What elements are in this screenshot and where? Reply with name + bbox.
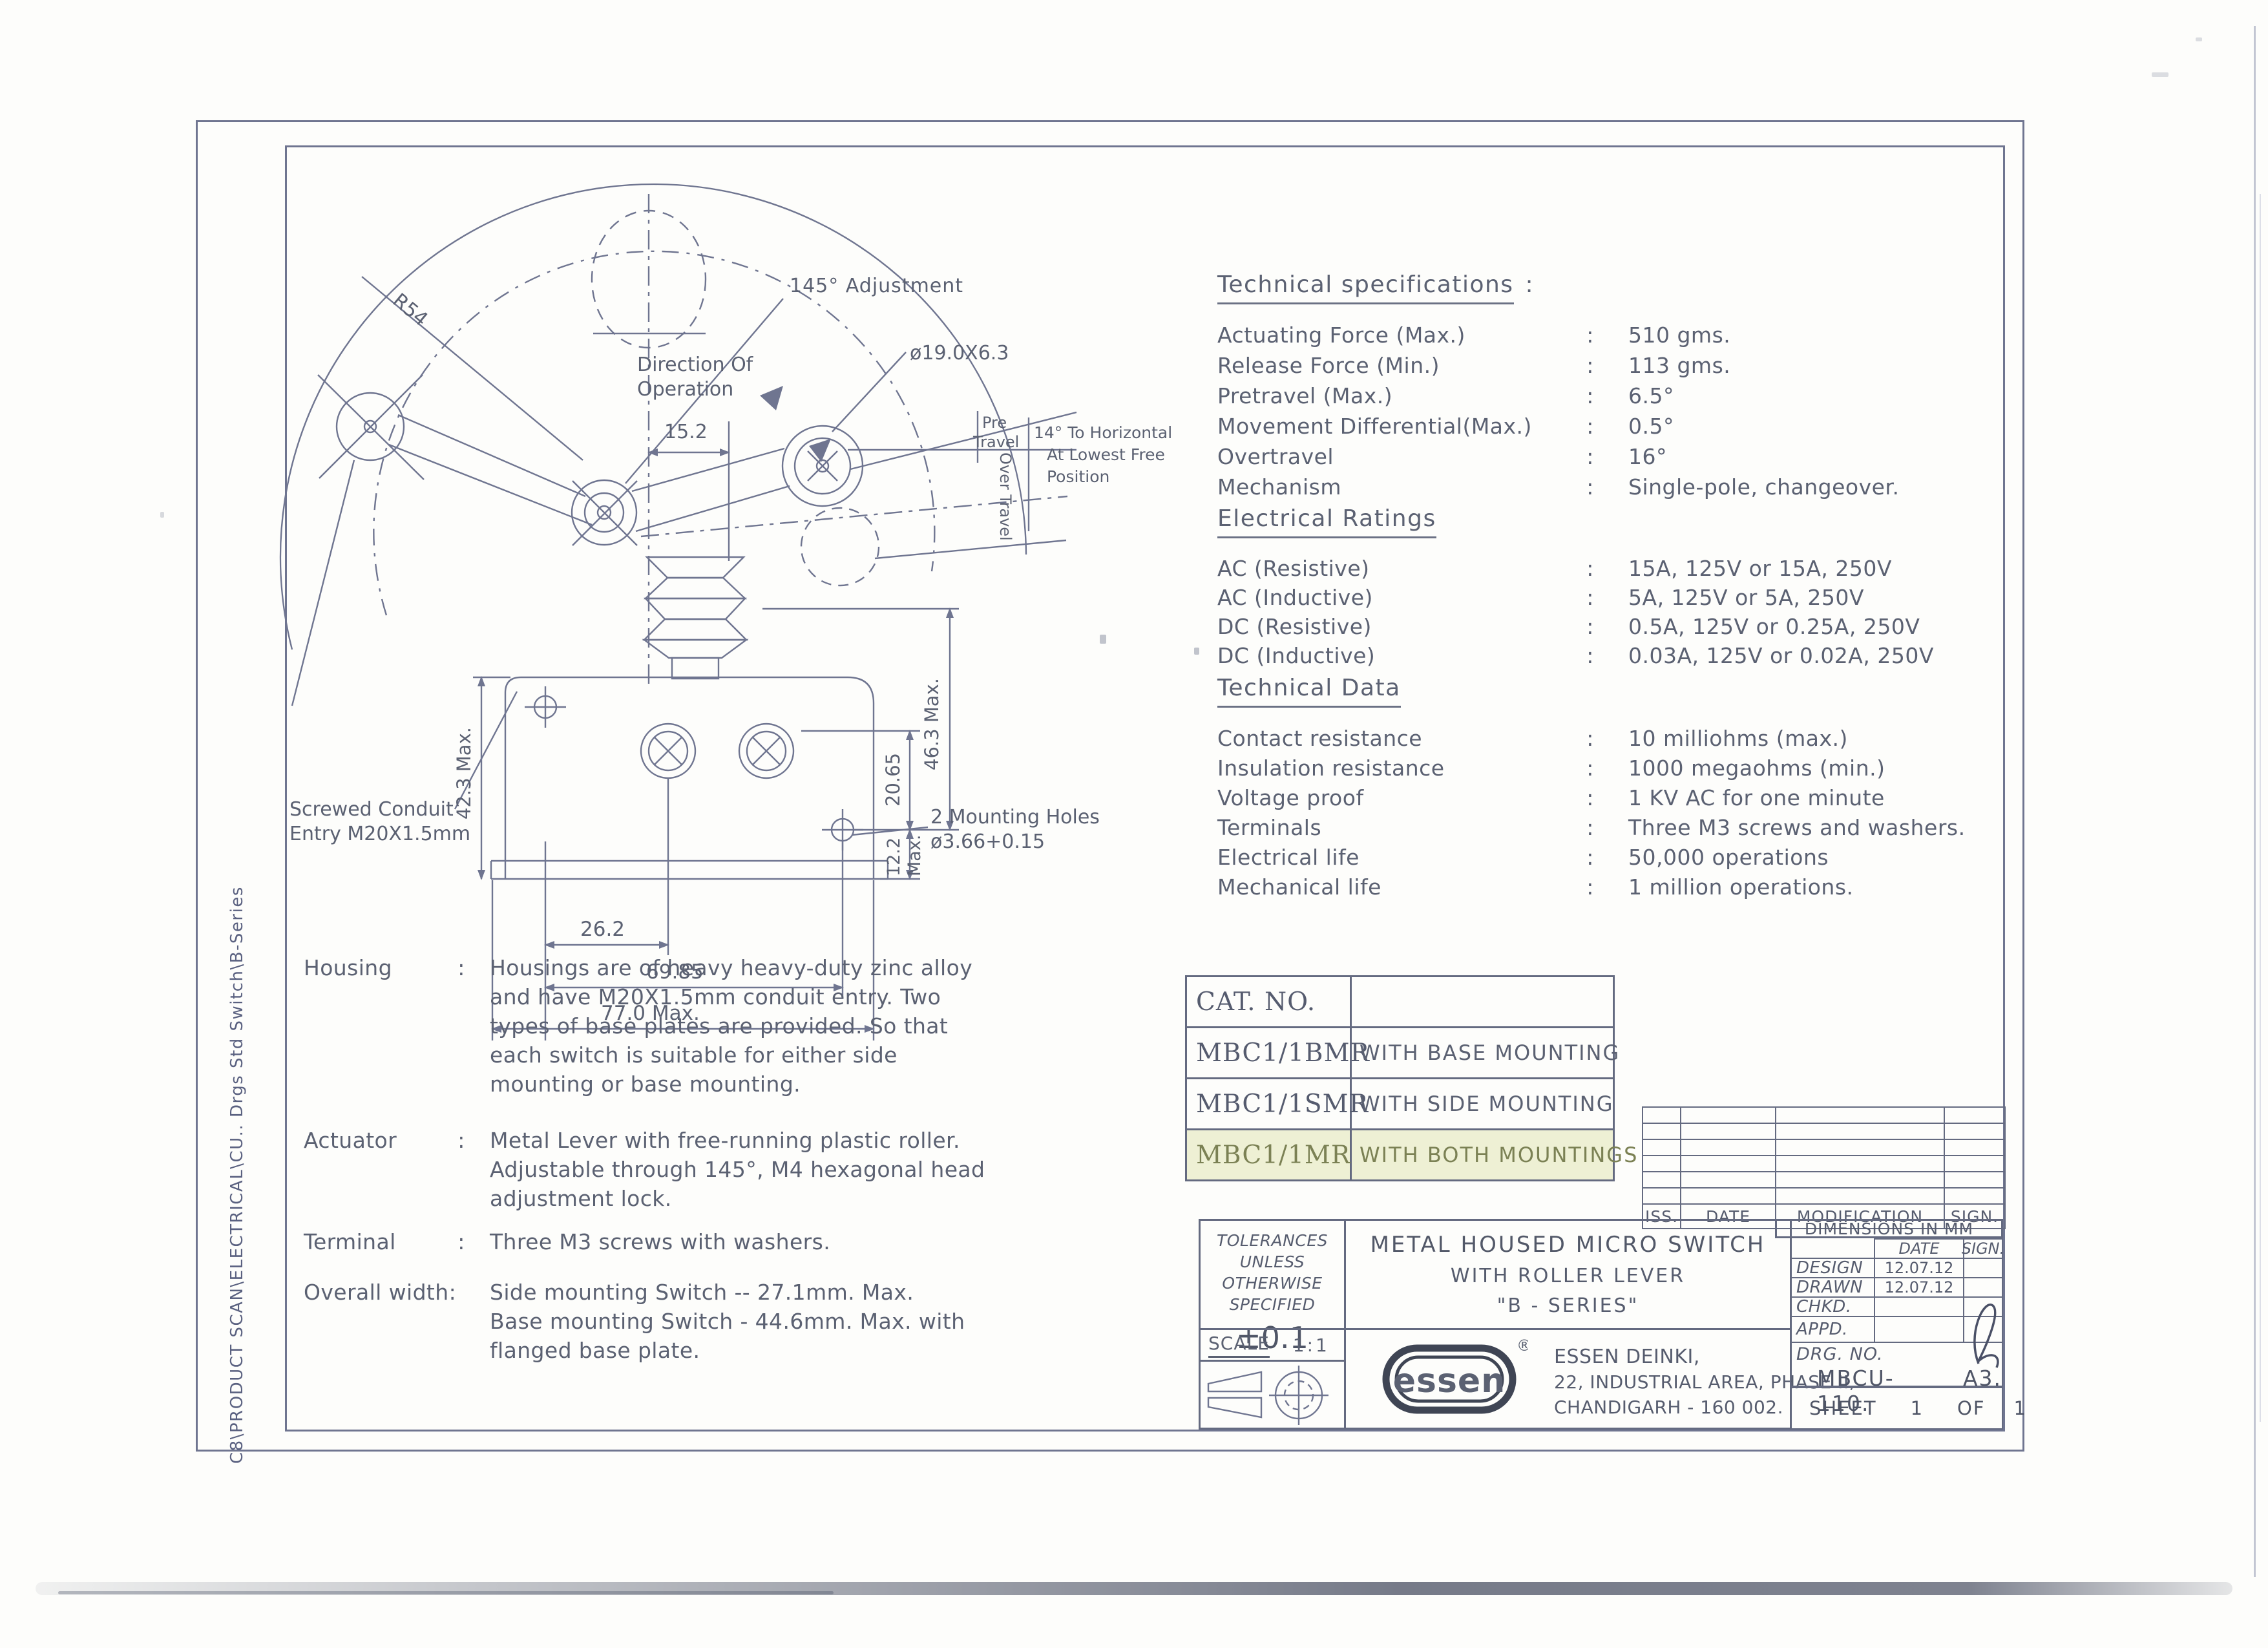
cat-code: MBC1/1MR — [1187, 1130, 1352, 1179]
drawing-title-line3: "B - SERIES" — [1497, 1294, 1639, 1317]
label-dim-20-65: 20.65 — [882, 753, 904, 807]
tolerances-line: UNLESS — [1201, 1251, 1344, 1273]
data-row: Electrical life:50,000 operations — [1217, 842, 2038, 872]
rating-label: AC (Inductive) — [1217, 585, 1566, 610]
technical-specifications-section: Technical specifications: Actuating Forc… — [1217, 271, 2038, 502]
chkd-label: CHKD. — [1790, 1296, 1875, 1317]
lever-left-line1 — [398, 415, 585, 496]
bellows-fold3 — [646, 598, 745, 619]
label-horizontal-1: 14° To Horizontal — [1034, 423, 1172, 442]
electrical-ratings-section: Electrical Ratings AC (Resistive):15A, 1… — [1217, 505, 2038, 670]
electrical-ratings-title: Electrical Ratings — [1217, 505, 2038, 538]
housing-note: Housing : Housings are of heavy heavy-du… — [304, 955, 1163, 1101]
spec-label: Overtravel — [1217, 444, 1566, 469]
scale-cell: SCALE 1:1 — [1199, 1328, 1346, 1430]
label-horizontal-2: At Lowest Free — [1047, 445, 1165, 464]
design-label: DESIGN — [1790, 1258, 1875, 1278]
catalog-number-table: CAT. NO. MBC1/1BMR WITH BASE MOUNTING MB… — [1185, 975, 1615, 1181]
spec-label: Pretravel (Max.) — [1217, 383, 1566, 408]
label-over-travel: Over Travel — [996, 452, 1014, 541]
label-pre-travel-1: Pre — [982, 414, 1007, 432]
rating-colon: : — [1566, 585, 1614, 610]
spec-value: 16° — [1628, 444, 1667, 469]
label-pre-travel-2: Travel — [972, 433, 1019, 451]
data-colon: : — [1566, 785, 1614, 810]
roller-lowest-position — [801, 508, 879, 586]
note-line: each switch is suitable for either side — [490, 1042, 1163, 1072]
data-colon: : — [1566, 845, 1614, 870]
plunger — [672, 658, 719, 679]
cat-header-cell: CAT. NO. — [1187, 977, 1352, 1026]
housing-note-label: Housing — [304, 955, 433, 1101]
tolerances-line: OTHERWISE — [1201, 1273, 1344, 1294]
label-dim-26-2: 26.2 — [580, 918, 625, 941]
note-line: Housings are of heavy heavy-duty zinc al… — [490, 955, 1163, 984]
technical-specifications-title-text: Technical specifications — [1217, 271, 1514, 304]
rating-row: AC (Resistive):15A, 125V or 15A, 250V — [1217, 554, 2038, 583]
data-label: Mechanical life — [1217, 874, 1566, 900]
data-row: Terminals:Three M3 screws and washers. — [1217, 812, 2038, 842]
rating-value: 15A, 125V or 15A, 250V — [1628, 556, 1892, 581]
tolerances-line: SPECIFIED — [1201, 1294, 1344, 1315]
technical-data-title: Technical Data — [1217, 675, 2038, 708]
direction-arrow-2 — [809, 439, 831, 462]
lowest-ext-line — [875, 540, 1066, 558]
label-roller-dia: ø19.0X6.3 — [910, 342, 1009, 364]
actuator-note-colon: : — [433, 1128, 490, 1215]
spec-label: Release Force (Min.) — [1217, 353, 1566, 378]
cat-desc: WITH SIDE MOUNTING — [1352, 1079, 1614, 1128]
technical-specifications-title: Technical specifications: — [1217, 271, 2038, 304]
revision-table: ISS. DATE MODIFICATION SIGN. — [1642, 1106, 2006, 1229]
scan-speck — [1100, 635, 1106, 644]
drawing-title-line2: WITH ROLLER LEVER — [1451, 1265, 1685, 1287]
note-line: Adjustable through 145°, M4 hexagonal he… — [490, 1157, 1163, 1186]
spec-row: Mechanism:Single-pole, changeover. — [1217, 472, 2038, 502]
overall-width-note-lines: Side mounting Switch -- 27.1mm. Max. Bas… — [490, 1280, 1163, 1367]
spec-label: Actuating Force (Max.) — [1217, 322, 1566, 348]
construction-line — [292, 460, 354, 706]
label-conduit-2: Entry M20X1.5mm — [289, 823, 470, 845]
sheet-total: 1 — [2014, 1397, 2027, 1419]
spec-value: 6.5° — [1628, 383, 1674, 408]
label-holes-2: ø3.66+0.15 — [930, 830, 1045, 853]
technical-data-title-text: Technical Data — [1217, 675, 1401, 708]
direction-arrow-1 — [760, 386, 783, 410]
lever-arm-bottom — [636, 486, 790, 531]
spec-label: Mechanism — [1217, 474, 1566, 500]
note-line: adjustment lock. — [490, 1186, 1163, 1215]
sheet-of: OF — [1957, 1397, 1986, 1419]
scanned-drawing-sheet: C8\PRODUCT SCAN\ELECTRICAL\CU.. Drgs Std… — [0, 0, 2268, 1648]
tolerances-line: TOLERANCES — [1201, 1230, 1344, 1251]
scan-speck — [2152, 72, 2168, 77]
sheet-label: SHEET — [1809, 1397, 1877, 1419]
note-line: flanged base plate. — [490, 1338, 1163, 1367]
housing-note-lines: Housings are of heavy heavy-duty zinc al… — [490, 955, 1163, 1101]
signature-stroke — [1975, 1305, 1998, 1368]
adjustment-arc — [280, 184, 1026, 650]
sheet-cell: SHEET 1 OF 1 — [1790, 1387, 2003, 1430]
note-line: types of base plates are provided. So th… — [490, 1013, 1163, 1042]
revision-empty-row — [1643, 1187, 2004, 1203]
note-line: and have M20X1.5mm conduit entry. Two — [490, 984, 1163, 1013]
rating-row: DC (Inductive):0.03A, 125V or 0.02A, 250… — [1217, 641, 2038, 670]
rating-label: AC (Resistive) — [1217, 556, 1566, 581]
overall-width-note-label: Overall width: — [304, 1280, 490, 1367]
appd-label: APPD. — [1790, 1316, 1875, 1343]
spec-row: Overtravel:16° — [1217, 441, 2038, 472]
leader-mounting-holes — [852, 827, 928, 835]
data-colon: : — [1566, 726, 1614, 751]
revision-empty-row — [1643, 1123, 2004, 1139]
data-value: 1 million operations. — [1628, 874, 1854, 900]
data-label: Electrical life — [1217, 845, 1566, 870]
revision-empty-row — [1643, 1155, 2004, 1171]
data-row: Insulation resistance:1000 megaohms (min… — [1217, 753, 2038, 783]
rating-value: 5A, 125V or 5A, 250V — [1628, 585, 1864, 610]
data-value: Three M3 screws and washers. — [1628, 815, 1966, 840]
spec-row: Actuating Force (Max.):510 gms. — [1217, 320, 2038, 350]
spec-colon: : — [1566, 383, 1614, 408]
label-holes-1: 2 Mounting Holes — [930, 806, 1100, 829]
label-radius: R54 — [388, 289, 432, 331]
note-line: Base mounting Switch - 44.6mm. Max. with — [490, 1309, 1163, 1338]
label-adjustment: 145° Adjustment — [790, 275, 963, 297]
label-dim-12-2a: 12.2 — [884, 838, 904, 876]
sign-column-header: SIGN. — [1963, 1238, 2003, 1259]
revision-empty-row — [1643, 1108, 2004, 1123]
revision-empty-row — [1643, 1139, 2004, 1155]
rating-colon: : — [1566, 556, 1614, 581]
electrical-ratings-title-text: Electrical Ratings — [1217, 505, 1436, 538]
data-value: 1000 megaohms (min.) — [1628, 755, 1885, 781]
drawn-label: DRAWN — [1790, 1277, 1875, 1298]
drawing-title-line1: METAL HOUSED MICRO SWITCH — [1370, 1232, 1766, 1258]
cat-code: MBC1/1BMR — [1187, 1028, 1352, 1077]
note-line: Side mounting Switch -- 27.1mm. Max. — [490, 1280, 1163, 1309]
spec-value: 0.5° — [1628, 414, 1674, 439]
lever-arm-top — [632, 449, 784, 491]
cat-desc: WITH BASE MOUNTING — [1352, 1028, 1620, 1077]
spec-colon: : — [1566, 444, 1614, 469]
revision-empty-row — [1643, 1171, 2004, 1187]
appd-date — [1874, 1316, 1964, 1343]
date-column-header: DATE — [1874, 1238, 1964, 1259]
data-label: Contact resistance — [1217, 726, 1566, 751]
spec-colon: : — [1566, 414, 1614, 439]
spec-colon: : — [1566, 474, 1614, 500]
terminal-note-lines: Three M3 screws with washers. — [490, 1229, 1163, 1258]
data-label: Insulation resistance — [1217, 755, 1566, 781]
registered-mark: ® — [1517, 1336, 1528, 1355]
sheet-number: 1 — [1911, 1397, 1924, 1419]
data-colon: : — [1566, 755, 1614, 781]
table-row: MBC1/1SMR WITH SIDE MOUNTING — [1187, 1077, 1613, 1128]
scan-speck — [2196, 37, 2202, 41]
cat-code: MBC1/1SMR — [1187, 1079, 1352, 1128]
spec-colon: : — [1566, 322, 1614, 348]
spec-value: 113 gms. — [1628, 353, 1730, 378]
scale-line: SCALE 1:1 — [1201, 1330, 1344, 1362]
lever-left-line2 — [389, 445, 592, 525]
label-direction-2: Operation — [637, 378, 733, 401]
bellows-fold2 — [646, 578, 745, 598]
spec-colon: : — [1566, 353, 1614, 378]
essen-logo: essen ® — [1380, 1336, 1528, 1421]
spec-value: 510 gms. — [1628, 322, 1730, 348]
rating-value: 0.03A, 125V or 0.02A, 250V — [1628, 643, 1934, 668]
electrical-ratings-rows: AC (Resistive):15A, 125V or 15A, 250V AC… — [1217, 554, 2038, 670]
label-dim-42-3: 42.3 Max. — [453, 727, 475, 819]
design-date: 12.07.12 — [1874, 1258, 1964, 1278]
label-dim-12-2b: Max. — [905, 835, 925, 876]
scan-speck — [160, 512, 164, 518]
actuator-note-lines: Metal Lever with free-running plastic ro… — [490, 1128, 1163, 1215]
label-conduit-1: Screwed Conduit — [289, 798, 454, 821]
terminal-note-colon: : — [433, 1229, 490, 1258]
data-row: Mechanical life:1 million operations. — [1217, 872, 2038, 902]
rating-colon: : — [1566, 614, 1614, 639]
housing-note-colon: : — [433, 955, 490, 1101]
projection-cone-bottom — [1208, 1398, 1261, 1417]
drawing-title-cell: METAL HOUSED MICRO SWITCH WITH ROLLER LE… — [1344, 1219, 1792, 1330]
scale-label: SCALE — [1208, 1333, 1270, 1358]
technical-data-rows: Contact resistance:10 milliohms (max.) I… — [1217, 723, 2038, 902]
scan-speck — [1194, 648, 1199, 655]
scan-edge-line-2 — [2260, 194, 2261, 1422]
cat-desc: WITH BOTH MOUNTINGS — [1352, 1130, 1638, 1179]
technical-specifications-rows: Actuating Force (Max.):510 gms. Release … — [1217, 320, 2038, 502]
label-horizontal-3: Position — [1047, 467, 1109, 486]
switch-dimensional-drawing: 145° Adjustment Direction Of Operation R… — [181, 116, 1189, 1086]
technical-data-section: Technical Data Contact resistance:10 mil… — [1217, 675, 2038, 902]
spec-row: Pretravel (Max.):6.5° — [1217, 381, 2038, 411]
scan-edge-line — [2254, 26, 2256, 1577]
bellows-fold4 — [644, 619, 746, 640]
data-colon: : — [1566, 815, 1614, 840]
data-colon: : — [1566, 874, 1614, 900]
scan-streak-artifact-2 — [58, 1591, 834, 1594]
label-direction-1: Direction Of — [637, 354, 754, 376]
note-line: Metal Lever with free-running plastic ro… — [490, 1128, 1163, 1157]
data-value: 10 milliohms (max.) — [1628, 726, 1848, 751]
tolerances-cell: TOLERANCES UNLESS OTHERWISE SPECIFIED ±0… — [1199, 1219, 1346, 1330]
rating-row: AC (Inductive):5A, 125V or 5A, 250V — [1217, 583, 2038, 612]
data-value: 50,000 operations — [1628, 845, 1829, 870]
rating-row: DC (Resistive):0.5A, 125V or 0.25A, 250V — [1217, 612, 2038, 641]
scale-value: 1:1 — [1293, 1335, 1330, 1356]
data-row: Voltage proof:1 KV AC for one minute — [1217, 783, 2038, 812]
rating-colon: : — [1566, 643, 1614, 668]
data-label: Voltage proof — [1217, 785, 1566, 810]
data-row: Contact resistance:10 milliohms (max.) — [1217, 723, 2038, 753]
rating-label: DC (Resistive) — [1217, 614, 1566, 639]
spec-row: Movement Differential(Max.):0.5° — [1217, 411, 2038, 441]
overall-width-note: Overall width: Side mounting Switch -- 2… — [304, 1280, 1163, 1367]
terminal-note: Terminal : Three M3 screws with washers. — [304, 1229, 1163, 1258]
cat-header-desc-cell — [1352, 977, 1613, 1026]
table-row-highlighted: MBC1/1MR WITH BOTH MOUNTINGS — [1187, 1128, 1613, 1179]
bellows-fold5 — [644, 640, 746, 658]
data-label: Terminals — [1217, 815, 1566, 840]
label-dim-46-3: 46.3 Max. — [921, 678, 943, 770]
adjustment-arc-inner — [373, 251, 934, 615]
drawn-date: 12.07.12 — [1874, 1277, 1964, 1298]
data-value: 1 KV AC for one minute — [1628, 785, 1885, 810]
table-row: MBC1/1BMR WITH BASE MOUNTING — [1187, 1026, 1613, 1077]
spec-row: Release Force (Min.):113 gms. — [1217, 350, 2038, 381]
rating-value: 0.5A, 125V or 0.25A, 250V — [1628, 614, 1920, 639]
essen-logo-text: essen — [1393, 1362, 1506, 1400]
title-colon: : — [1526, 271, 1535, 298]
design-sign — [1963, 1258, 2003, 1278]
label-dim-15-2: 15.2 — [664, 421, 708, 443]
actuator-note: Actuator : Metal Lever with free-running… — [304, 1128, 1163, 1215]
rating-label: DC (Inductive) — [1217, 643, 1566, 668]
spec-value: Single-pole, changeover. — [1628, 474, 1899, 500]
cat-header-row: CAT. NO. — [1187, 977, 1613, 1026]
chkd-date — [1874, 1296, 1964, 1317]
note-line: mounting or base mounting. — [490, 1072, 1163, 1101]
approval-signature — [1959, 1287, 2011, 1371]
leader-roller-dia — [832, 352, 906, 432]
terminal-note-label: Terminal — [304, 1229, 433, 1258]
spec-label: Movement Differential(Max.) — [1217, 414, 1566, 439]
actuator-note-label: Actuator — [304, 1128, 433, 1215]
projection-symbol — [1201, 1362, 1344, 1430]
projection-cone-top — [1208, 1372, 1261, 1391]
note-line: Three M3 screws with washers. — [490, 1229, 1163, 1258]
company-cell: essen ® ESSEN DEINKI, 22, INDUSTRIAL ARE… — [1344, 1328, 1792, 1430]
